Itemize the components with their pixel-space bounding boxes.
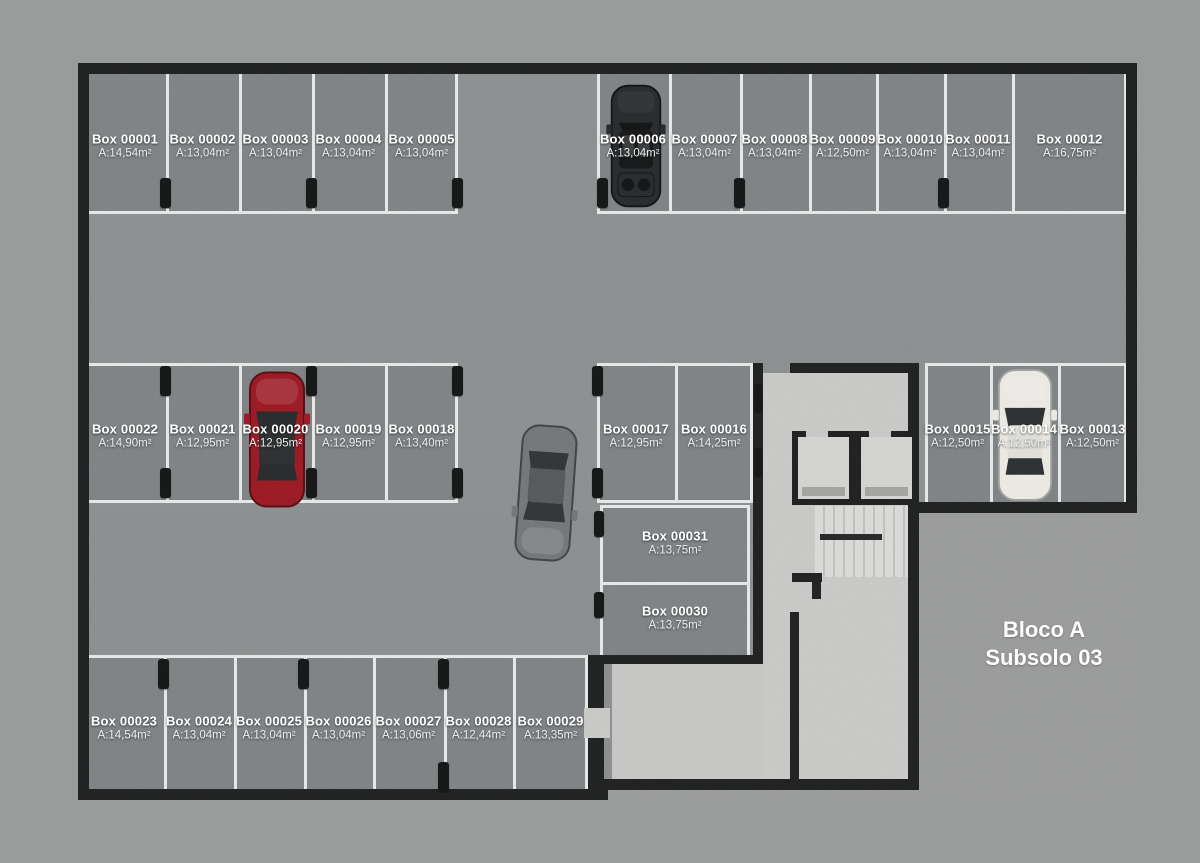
parking-box-area: A:13,04m² (877, 147, 943, 161)
parking-box-00004-label: Box 00004A:13,04m² (315, 132, 381, 161)
parking-box-number: Box 00007 (671, 132, 737, 147)
parking-box-area: A:12,95m² (315, 437, 381, 451)
parking-box-number: Box 00009 (809, 132, 875, 147)
parking-box-area: A:14,25m² (681, 437, 747, 451)
car-gray (506, 421, 586, 566)
parking-box-area: A:14,54m² (91, 729, 157, 743)
parking-box-00016-label: Box 00016A:14,25m² (681, 422, 747, 451)
parking-box-number: Box 00008 (741, 132, 807, 147)
parking-box-number: Box 00003 (242, 132, 308, 147)
parking-box-number: Box 00025 (236, 714, 302, 729)
parking-box-area: A:14,54m² (92, 147, 158, 161)
parking-box-00028-label: Box 00028A:12,44m² (445, 714, 511, 743)
parking-box-00022-label: Box 00022A:14,90m² (92, 422, 158, 451)
parking-box-area: A:13,04m² (315, 147, 381, 161)
parking-box-area: A:12,50m² (809, 147, 875, 161)
parking-box-number: Box 00005 (388, 132, 454, 147)
parking-box-00002-label: Box 00002A:13,04m² (169, 132, 235, 161)
parking-box-number: Box 00030 (642, 604, 708, 619)
parking-box-number: Box 00031 (642, 529, 708, 544)
parking-box-number: Box 00029 (517, 714, 583, 729)
plan-title-level: Subsolo 03 (964, 644, 1124, 672)
parking-box-area: A:16,75m² (1036, 147, 1102, 161)
parking-box-number: Box 00017 (603, 422, 669, 437)
parking-box-00031-label: Box 00031A:13,75m² (642, 529, 708, 558)
car-white (992, 365, 1058, 505)
parking-box-area: A:12,50m² (924, 437, 990, 451)
parking-box-area: A:13,75m² (642, 544, 708, 558)
parking-box-area: A:13,04m² (166, 729, 232, 743)
parking-box-number: Box 00002 (169, 132, 235, 147)
parking-box-00015-label: Box 00015A:12,50m² (924, 422, 990, 451)
parking-box-number: Box 00022 (92, 422, 158, 437)
parking-box-area: A:12,44m² (445, 729, 511, 743)
parking-box-00009-label: Box 00009A:12,50m² (809, 132, 875, 161)
parking-box-area: A:13,04m² (945, 147, 1010, 161)
parking-box-number: Box 00028 (445, 714, 511, 729)
parking-box-00018-label: Box 00018A:13,40m² (388, 422, 454, 451)
parking-box-00019-label: Box 00019A:12,95m² (315, 422, 381, 451)
parking-box-00010-label: Box 00010A:13,04m² (877, 132, 943, 161)
car-black-convertible (601, 83, 671, 209)
parking-box-00029-label: Box 00029A:13,35m² (517, 714, 583, 743)
parking-box-00013-label: Box 00013A:12,50m² (1059, 422, 1125, 451)
parking-box-00021-label: Box 00021A:12,95m² (169, 422, 235, 451)
parking-box-number: Box 00023 (91, 714, 157, 729)
floor-plan: Box 00001A:14,54m²Box 00002A:13,04m²Box … (0, 0, 1200, 863)
parking-box-00026-label: Box 00026A:13,04m² (305, 714, 371, 743)
plan-title: Bloco A Subsolo 03 (964, 616, 1124, 672)
parking-box-00011-label: Box 00011A:13,04m² (945, 132, 1010, 161)
parking-box-number: Box 00016 (681, 422, 747, 437)
parking-box-area: A:13,04m² (242, 147, 308, 161)
parking-box-area: A:13,75m² (642, 619, 708, 633)
parking-box-00023-label: Box 00023A:14,54m² (91, 714, 157, 743)
parking-box-area: A:12,95m² (169, 437, 235, 451)
parking-box-area: A:12,95m² (603, 437, 669, 451)
parking-box-number: Box 00001 (92, 132, 158, 147)
parking-box-area: A:13,40m² (388, 437, 454, 451)
parking-box-00027-label: Box 00027A:13,06m² (375, 714, 441, 743)
parking-box-number: Box 00021 (169, 422, 235, 437)
parking-box-area: A:14,90m² (92, 437, 158, 451)
car-red (243, 366, 311, 513)
parking-box-area: A:12,50m² (1059, 437, 1125, 451)
parking-box-area: A:13,04m² (741, 147, 807, 161)
parking-box-number: Box 00018 (388, 422, 454, 437)
parking-box-area: A:13,04m² (388, 147, 454, 161)
parking-box-number: Box 00013 (1059, 422, 1125, 437)
parking-box-00007-label: Box 00007A:13,04m² (671, 132, 737, 161)
parking-box-00030-label: Box 00030A:13,75m² (642, 604, 708, 633)
parking-box-00008-label: Box 00008A:13,04m² (741, 132, 807, 161)
plan-title-block: Bloco A (964, 616, 1124, 644)
parking-box-number: Box 00012 (1036, 132, 1102, 147)
parking-box-00005-label: Box 00005A:13,04m² (388, 132, 454, 161)
parking-box-area: A:13,04m² (169, 147, 235, 161)
parking-box-number: Box 00024 (166, 714, 232, 729)
parking-box-00024-label: Box 00024A:13,04m² (166, 714, 232, 743)
parking-box-number: Box 00015 (924, 422, 990, 437)
parking-box-00017-label: Box 00017A:12,95m² (603, 422, 669, 451)
parking-box-00003-label: Box 00003A:13,04m² (242, 132, 308, 161)
parking-box-number: Box 00027 (375, 714, 441, 729)
parking-box-number: Box 00010 (877, 132, 943, 147)
parking-box-area: A:13,04m² (236, 729, 302, 743)
parking-box-00001-label: Box 00001A:14,54m² (92, 132, 158, 161)
parking-box-number: Box 00026 (305, 714, 371, 729)
parking-box-area: A:13,35m² (517, 729, 583, 743)
parking-box-00012-label: Box 00012A:16,75m² (1036, 132, 1102, 161)
parking-box-00025-label: Box 00025A:13,04m² (236, 714, 302, 743)
parking-box-number: Box 00004 (315, 132, 381, 147)
parking-box-number: Box 00019 (315, 422, 381, 437)
parking-box-area: A:13,06m² (375, 729, 441, 743)
parking-box-number: Box 00011 (945, 132, 1010, 147)
parking-box-area: A:13,04m² (671, 147, 737, 161)
parking-box-area: A:13,04m² (305, 729, 371, 743)
